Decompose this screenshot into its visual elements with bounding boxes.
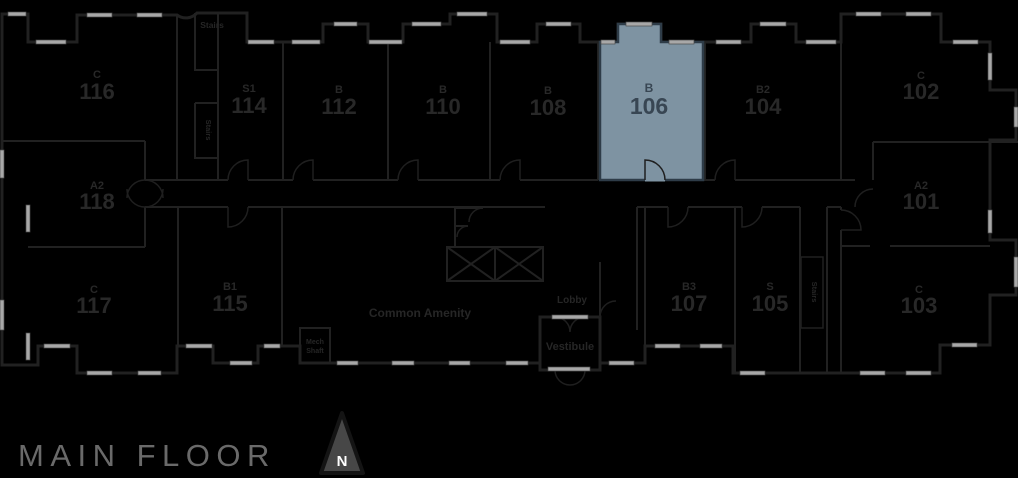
north-compass: N (321, 413, 363, 473)
mech-shaft-label-line2: Shaft (306, 348, 324, 355)
unit-103[interactable]: C 103 (901, 284, 938, 318)
floor-plan: C 116 S1 114 B 112 B 110 B 108 B 106 B2 … (0, 0, 1018, 478)
unit-107-number: 107 (671, 291, 708, 316)
floor-title: MAIN FLOOR (18, 438, 276, 473)
mech-shaft-label-line1: Mech (306, 339, 324, 346)
unit-103-number: 103 (901, 293, 938, 318)
unit-104[interactable]: B2 104 (745, 84, 782, 119)
lobby-label: Lobby (557, 295, 587, 306)
unit-101-number: 101 (903, 189, 940, 214)
unit-106-number: 106 (630, 93, 668, 119)
unit-115[interactable]: B1 115 (212, 281, 248, 316)
unit-114[interactable]: S1 114 (231, 83, 267, 118)
unit-108-number: 108 (530, 95, 567, 120)
windows-layer (0, 12, 1018, 375)
unit-106-door-gap (645, 179, 665, 182)
unit-116-number: 116 (79, 79, 115, 104)
unit-102-number: 102 (903, 79, 940, 104)
north-compass-letter: N (337, 453, 348, 470)
unit-105-number: 105 (752, 291, 789, 316)
unit-110-number: 110 (425, 94, 461, 119)
unit-107[interactable]: B3 107 (671, 281, 708, 316)
unit-102[interactable]: C 102 (903, 70, 940, 104)
doors-layer (127, 160, 873, 385)
unit-114-number: 114 (231, 93, 267, 118)
unit-118-number: 118 (79, 189, 115, 214)
stairs-right-label: Stairs (810, 282, 819, 303)
unit-105[interactable]: S 105 (752, 281, 789, 316)
unit-112[interactable]: B 112 (321, 84, 357, 119)
unit-115-number: 115 (212, 291, 248, 316)
unit-118[interactable]: A2 118 (79, 180, 115, 214)
unit-112-number: 112 (321, 94, 357, 119)
unit-108[interactable]: B 108 (530, 85, 567, 120)
common-amenity-label: Common Amenity (369, 306, 472, 320)
stairs-top-label: Stairs (200, 20, 224, 30)
vestibule-label: Vestibule (546, 341, 594, 353)
stairs-left-label: Stairs (204, 120, 213, 141)
unit-116[interactable]: C 116 (79, 69, 115, 104)
unit-104-number: 104 (745, 94, 782, 119)
unit-117[interactable]: C 117 (76, 284, 112, 318)
unit-101[interactable]: A2 101 (903, 180, 940, 214)
unit-117-number: 117 (76, 293, 112, 318)
unit-110[interactable]: B 110 (425, 84, 461, 119)
walls (2, 13, 1018, 373)
